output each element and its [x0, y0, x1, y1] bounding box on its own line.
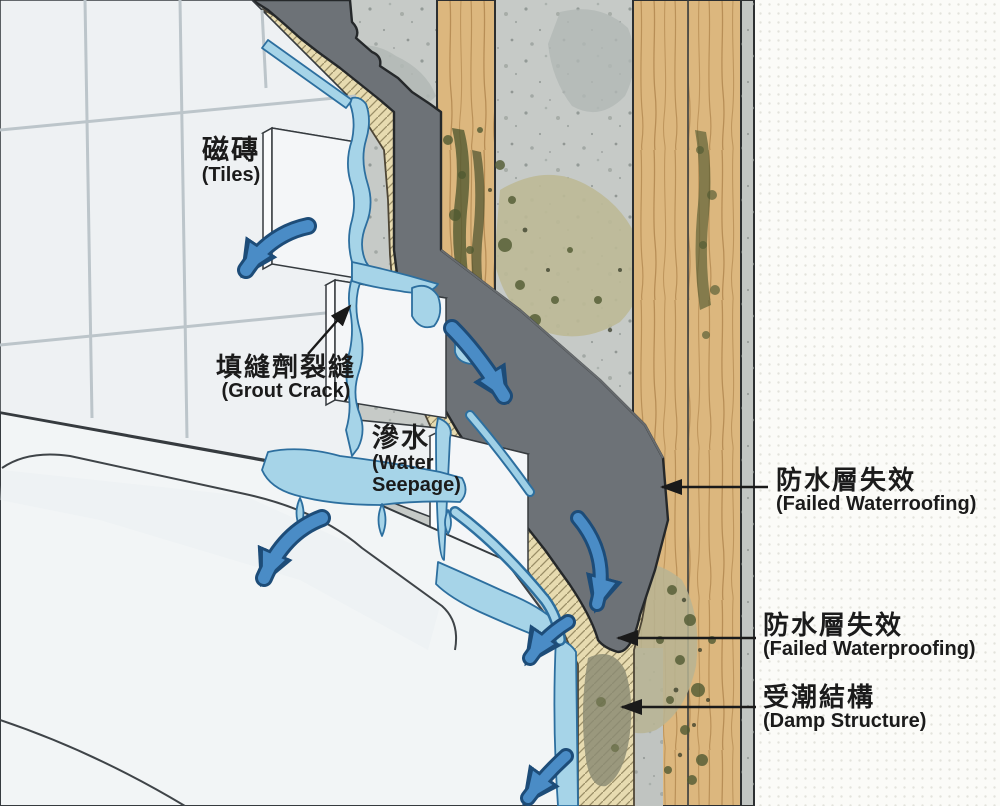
bathroom-water-damage-diagram: 磁磚 (Tiles) 填縫劑裂縫 (Grout Crack) 滲水 (Water…: [0, 0, 1000, 806]
cutaway-illustration: [0, 0, 1000, 806]
tile-peeled-a: [263, 128, 356, 278]
concrete-edge-strip: [741, 0, 754, 806]
